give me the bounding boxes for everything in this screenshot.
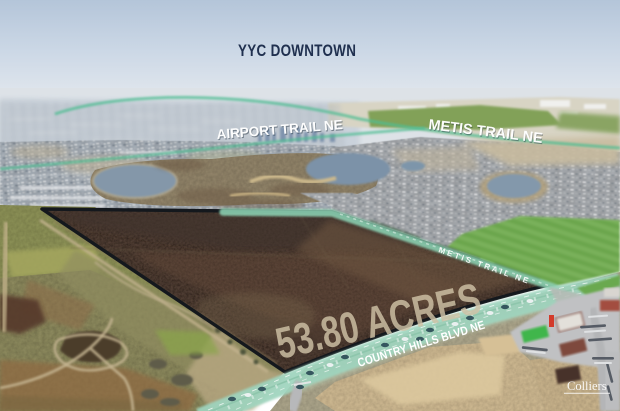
svg-text:YYC DOWNTOWN: YYC DOWNTOWN: [238, 42, 356, 61]
svg-text:Colliers: Colliers: [567, 379, 607, 393]
